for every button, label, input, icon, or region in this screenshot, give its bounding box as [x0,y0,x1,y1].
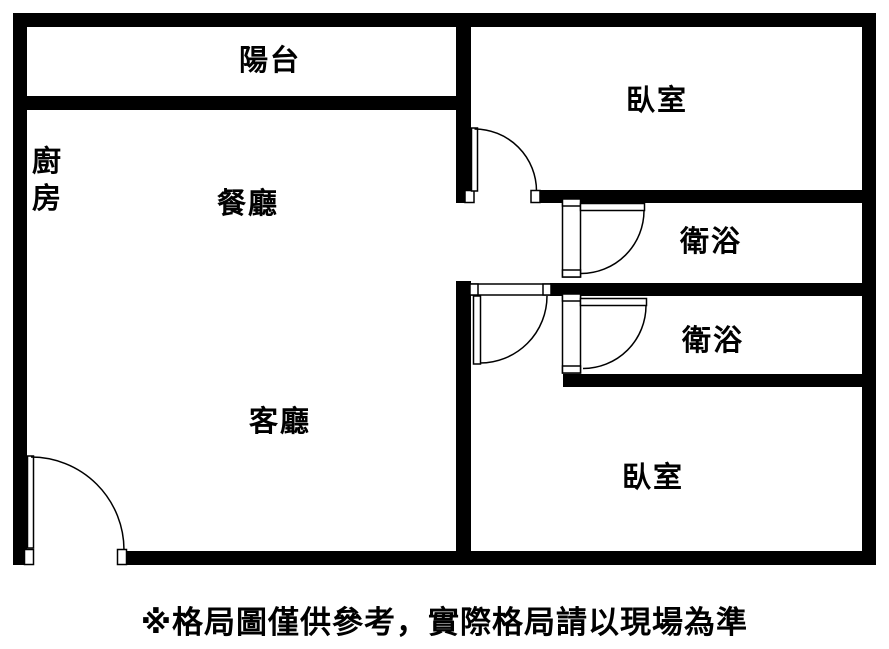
bathroom-bottom-door-frame-cap-top [563,294,581,301]
room-label-kitchen: 廚房 [31,144,62,218]
bathroom-top-door-frame-cap-bottom [563,270,581,277]
disclaimer-caption: ※格局圖僅供參考，實際格局請以現場為準 [0,597,889,642]
hallway-door-jamb-right [543,284,551,295]
entrance-door-arc [31,457,124,550]
room-label-bathroom-bottom: 衛浴 [682,326,744,358]
bathroom-top-door-frame-cap-top [563,199,581,206]
hallway-door-leaf [474,296,481,364]
door-symbols-layer [0,0,889,649]
room-label-balcony: 陽台 [239,46,301,78]
bathroom-top-door-leaf [581,204,645,211]
bathroom-bottom-door-leaf [581,299,647,306]
bathroom-top-door-frame [563,199,581,277]
entrance-door-jamb-left [25,550,34,565]
hallway-door-arc [480,296,547,363]
bathroom-bottom-door-frame-cap-bottom [563,366,581,373]
bathroom-bottom-door-frame [563,294,581,373]
room-label-dining: 餐廳 [217,189,279,221]
bedroom-top-door-leaf [472,128,478,191]
bedroom-top-door-jamb-right [531,191,540,203]
bedroom-top-door-jamb-left [465,191,474,203]
room-label-bedroom-bottom: 臥室 [622,463,684,495]
bathroom-top-door-arc [581,211,644,274]
hallway-door-jamb-left [470,284,478,295]
room-label-living: 客廳 [249,407,311,439]
entrance-door-leaf [28,456,34,548]
floorplan-image: 陽台 廚房 餐廳 客廳 臥室 衛浴 衛浴 臥室 ※格局圖僅供參考，實際格局請以現… [0,0,889,649]
room-label-bedroom-top: 臥室 [626,86,688,118]
bathroom-bottom-door-arc [583,306,646,369]
entrance-door-jamb-right [118,550,127,565]
hallway-door-header [470,284,551,295]
bedroom-top-door-arc [475,129,537,191]
room-label-bathroom-top: 衛浴 [680,227,742,259]
